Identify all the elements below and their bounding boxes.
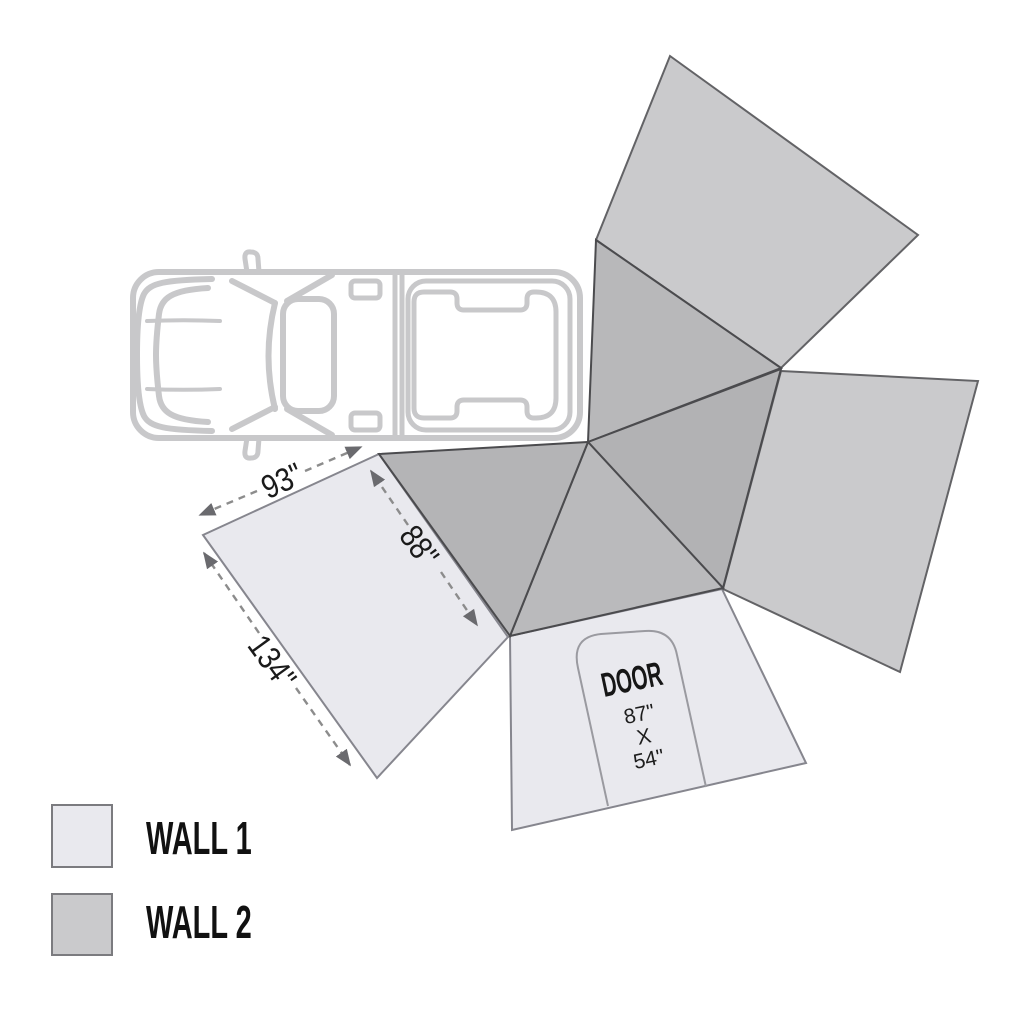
diagram-canvas (0, 0, 1024, 1024)
legend-swatch-wall1 (51, 804, 113, 868)
vehicle-outline (133, 252, 580, 458)
legend-label-wall1: WALL 1 (146, 818, 252, 858)
dimension-arrow-93-a (200, 491, 257, 515)
awning-diagram: 93" 88" 134" DOOR 87" X 54" WALL 1 WALL … (0, 0, 1024, 1024)
legend-label-wall2: WALL 2 (146, 902, 252, 942)
legend-swatch-wall2 (51, 893, 113, 956)
